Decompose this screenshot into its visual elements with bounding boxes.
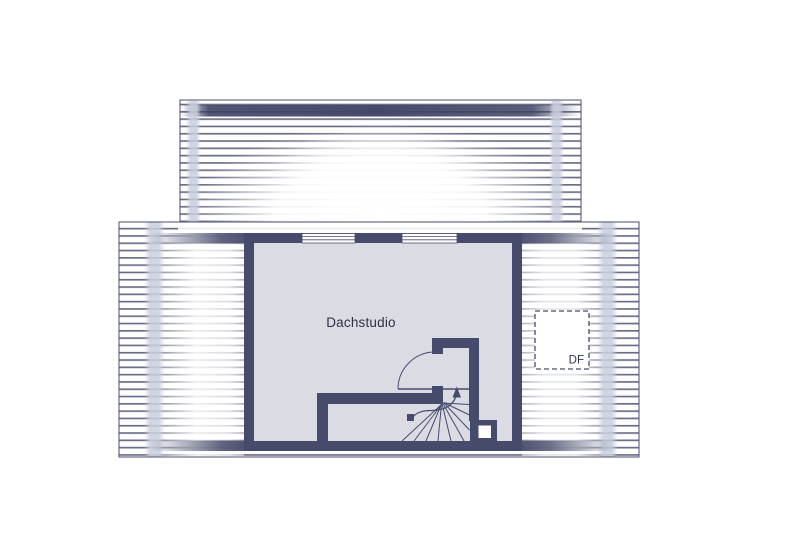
ridge-shadow-band	[181, 105, 580, 117]
stair-guard-wall	[317, 393, 435, 404]
top-wall-fade-right	[522, 233, 615, 244]
top-wall-fade-left	[150, 233, 244, 244]
dachstudio-room: Dachstudio	[244, 233, 522, 451]
roof-window-label: DF	[569, 355, 584, 367]
window-top-left	[302, 234, 355, 244]
roof-sheen-left	[186, 101, 201, 228]
chimney-flue	[479, 426, 492, 439]
roof-sheen-right	[549, 101, 564, 228]
floor-plan-canvas: DF Dachstudio	[0, 0, 794, 555]
chimney	[470, 420, 497, 441]
roof-sheen-left-lower	[144, 223, 165, 457]
room-label: Dachstudio	[326, 315, 396, 330]
window-top-right	[402, 234, 457, 244]
floor-plan: DF Dachstudio	[0, 0, 794, 555]
bottom-wall-fade-left	[150, 441, 244, 452]
roof-window-df: DF	[535, 311, 589, 369]
bottom-wall-fade-right	[522, 441, 615, 452]
roof-sheen-right-lower	[597, 223, 618, 457]
